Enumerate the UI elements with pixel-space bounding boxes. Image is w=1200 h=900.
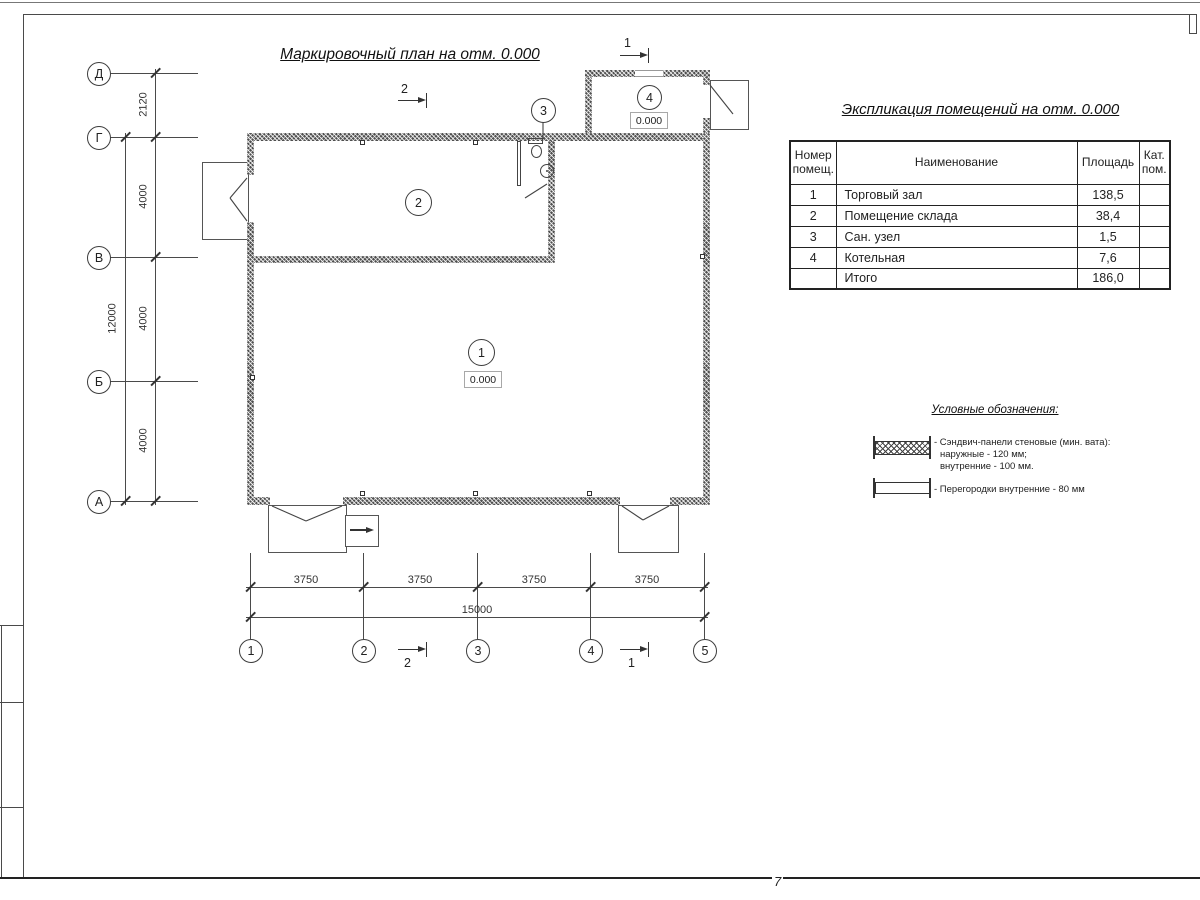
- legend-symbol-end-tick: [873, 478, 875, 498]
- porch-south-left: [268, 505, 347, 553]
- frame-top-line: [23, 14, 1197, 15]
- wall-boiler-left: [585, 77, 592, 133]
- explication-title: Экспликация помещений на отм. 0.000: [789, 101, 1172, 118]
- axis-line-1: [250, 553, 251, 639]
- section-label: 2: [401, 82, 408, 96]
- cell-area: 1,5: [1077, 226, 1139, 247]
- legend-symbol-end-tick: [929, 478, 931, 498]
- dim-total-bottom: [246, 617, 708, 618]
- axis-label-1: 1: [248, 644, 255, 658]
- cell-name: Итого: [836, 268, 1077, 289]
- axis-bubble-a: А: [87, 490, 111, 514]
- legend-title: Условные обозначения:: [900, 404, 1090, 416]
- cell-category: [1139, 205, 1170, 226]
- axis-line-3: [477, 553, 478, 639]
- panel-joint: [360, 491, 365, 496]
- cell-number: 4: [790, 247, 836, 268]
- table-row: 4 Котельная 7,6: [790, 247, 1170, 268]
- dim-value: 4000: [137, 295, 150, 343]
- room-level-1: 0.000: [464, 371, 502, 388]
- sheet-outer-top-line: [0, 2, 1200, 3]
- partition-wc: [517, 141, 521, 186]
- page-number: 7: [772, 874, 783, 889]
- section-arrow-icon: [640, 52, 648, 58]
- plan-title: Маркировочный план на отм. 0.000: [250, 46, 570, 64]
- legend-sandwich-line2: наружные - 120 мм;: [940, 449, 1027, 460]
- panel-joint: [250, 375, 255, 380]
- cell-name: Котельная: [836, 247, 1077, 268]
- cell-category: [1139, 247, 1170, 268]
- panel-joint: [473, 491, 478, 496]
- table-row: 1 Торговый зал 138,5: [790, 184, 1170, 205]
- room-bubble-2: 2: [405, 189, 432, 216]
- dim-value: 4000: [137, 417, 150, 465]
- section-arrow-shaft: [398, 100, 420, 101]
- legend-sandwich-symbol: [875, 441, 930, 455]
- axis-bubble-5: 5: [693, 639, 717, 663]
- panel-joint: [360, 140, 365, 145]
- dim-value: 2120: [137, 81, 150, 129]
- axis-label-v: В: [95, 251, 103, 265]
- cell-number: 3: [790, 226, 836, 247]
- porch-west: [202, 162, 249, 240]
- room-number-1: 1: [478, 346, 485, 360]
- room-bubble-3: 3: [531, 98, 556, 123]
- axis-line-2: [363, 553, 364, 639]
- axis-bubble-3: 3: [466, 639, 490, 663]
- axis-bubble-b: Б: [87, 370, 111, 394]
- margin-strip-divider: [0, 625, 23, 626]
- legend-symbol-end-tick: [873, 436, 875, 459]
- frame-corner-box-line: [1189, 14, 1190, 33]
- dim-value: 3750: [286, 574, 326, 586]
- axis-line-4: [590, 553, 591, 639]
- wall-left-seg: [247, 133, 254, 175]
- wall-left-seg: [247, 222, 254, 505]
- room-number-2: 2: [415, 196, 422, 210]
- dim-total-left: [125, 133, 126, 505]
- room-number-4: 4: [646, 91, 653, 105]
- col-header-name: Наименование: [836, 141, 1077, 184]
- toilet-tank: [528, 138, 543, 144]
- section-arrow-icon: [640, 646, 648, 652]
- porch-south-right: [618, 505, 679, 553]
- legend-partition-symbol: [875, 482, 930, 494]
- section-arrow-shaft: [620, 649, 642, 650]
- room-bubble-1: 1: [468, 339, 495, 366]
- section-arrow-icon: [418, 97, 426, 103]
- cell-number: 1: [790, 184, 836, 205]
- axis-bubble-d: Д: [87, 62, 111, 86]
- table-row: 2 Помещение склада 38,4: [790, 205, 1170, 226]
- panel-joint: [473, 140, 478, 145]
- section-label: 2: [404, 656, 411, 670]
- door-wc-leaf: [525, 184, 547, 198]
- section-arrow-bar: [426, 93, 427, 108]
- section-arrow-bar: [648, 48, 649, 63]
- room-number-3: 3: [540, 104, 547, 118]
- cell-area: 186,0: [1077, 268, 1139, 289]
- partition-storeroom-east: [548, 141, 555, 263]
- dim-value: 3750: [627, 574, 667, 586]
- axis-bubble-v: В: [87, 246, 111, 270]
- section-arrow-shaft: [398, 649, 420, 650]
- cell-category: [1139, 268, 1170, 289]
- toilet-bowl: [531, 145, 542, 158]
- cell-name: Сан. узел: [836, 226, 1077, 247]
- wall-top: [247, 133, 710, 141]
- panel-joint: [700, 254, 705, 259]
- margin-strip-left-edge: [1, 625, 2, 877]
- axis-bubble-g: Г: [87, 126, 111, 150]
- legend-sandwich-line3: внутренние - 100 мм.: [940, 461, 1034, 472]
- section-arrow-shaft: [620, 55, 642, 56]
- dim-total-value: 15000: [447, 604, 507, 616]
- cell-number: 2: [790, 205, 836, 226]
- dim-total-value: 12000: [106, 295, 119, 343]
- table-row-total: Итого 186,0: [790, 268, 1170, 289]
- dim-value: 3750: [514, 574, 554, 586]
- section-label: 1: [628, 656, 635, 670]
- cell-category: [1139, 184, 1170, 205]
- axis-label-2: 2: [361, 644, 368, 658]
- cell-area: 7,6: [1077, 247, 1139, 268]
- col-header-category: Кат. пом.: [1139, 141, 1170, 184]
- wall-bottom-seg: [343, 497, 620, 505]
- cell-name: Торговый зал: [836, 184, 1077, 205]
- cell-name: Помещение склада: [836, 205, 1077, 226]
- entry-arrow-shaft: [350, 529, 366, 531]
- porch-boiler-east: [710, 80, 749, 130]
- legend-sandwich-line1: - Сэндвич-панели стеновые (мин. вата):: [934, 437, 1110, 448]
- frame-bottom-line: [0, 877, 1200, 879]
- legend-symbol-end-tick: [929, 436, 931, 459]
- wall-right: [703, 133, 710, 505]
- drawing-sheet: 7 Маркировочный план на отм. 0.000 Экспл…: [0, 0, 1200, 900]
- wall-boiler-right-seg: [703, 77, 710, 85]
- axis-label-5: 5: [702, 644, 709, 658]
- room-level-4: 0.000: [630, 112, 668, 129]
- axis-label-4: 4: [588, 644, 595, 658]
- cell-area: 138,5: [1077, 184, 1139, 205]
- sink-dot: [546, 170, 548, 172]
- room-bubble-4: 4: [637, 85, 662, 110]
- axis-label-a: А: [95, 495, 103, 509]
- frame-right-line: [1196, 14, 1197, 33]
- dim-value: 4000: [137, 173, 150, 221]
- boiler-window: [635, 70, 663, 77]
- section-label: 1: [624, 36, 631, 50]
- axis-line-5: [704, 553, 705, 639]
- cell-area: 38,4: [1077, 205, 1139, 226]
- panel-joint: [587, 491, 592, 496]
- cell-number: [790, 268, 836, 289]
- axis-bubble-1: 1: [239, 639, 263, 663]
- col-header-area: Площадь: [1077, 141, 1139, 184]
- axis-label-b: Б: [95, 375, 103, 389]
- axis-bubble-4: 4: [579, 639, 603, 663]
- margin-strip-divider: [0, 807, 23, 808]
- partition-storeroom-south: [247, 256, 555, 263]
- axis-label-3: 3: [475, 644, 482, 658]
- margin-strip-divider: [0, 702, 23, 703]
- frame-left-line: [23, 14, 24, 877]
- cell-category: [1139, 226, 1170, 247]
- entry-arrow-icon: [366, 527, 374, 533]
- explication-table: Номер помещ. Наименование Площадь Кат. п…: [789, 140, 1171, 290]
- table-header-row: Номер помещ. Наименование Площадь Кат. п…: [790, 141, 1170, 184]
- axis-label-d: Д: [95, 67, 103, 81]
- table-row: 3 Сан. узел 1,5: [790, 226, 1170, 247]
- axis-label-g: Г: [96, 131, 103, 145]
- section-arrow-icon: [418, 646, 426, 652]
- section-arrow-bar: [426, 642, 427, 657]
- section-arrow-bar: [648, 642, 649, 657]
- dim-value: 3750: [400, 574, 440, 586]
- legend-partition-line1: - Перегородки внутренние - 80 мм: [934, 484, 1085, 495]
- axis-bubble-2: 2: [352, 639, 376, 663]
- wall-boiler-right-seg: [703, 118, 710, 133]
- col-header-number: Номер помещ.: [790, 141, 836, 184]
- frame-corner-box-bottom: [1189, 33, 1197, 34]
